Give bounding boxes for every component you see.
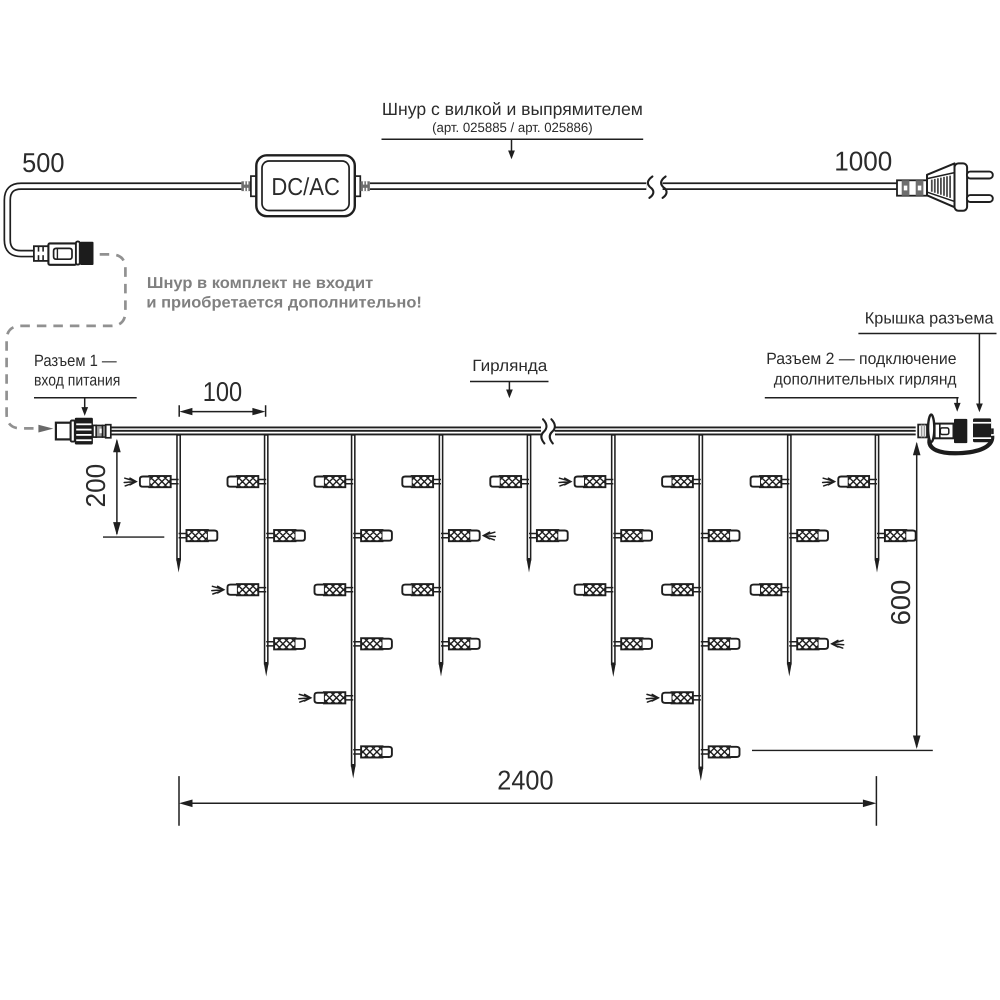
svg-text:DC/AC: DC/AC	[271, 174, 340, 201]
svg-text:Шнур с вилкой и выпрямителем: Шнур с вилкой и выпрямителем	[382, 99, 643, 119]
svg-text:Гирлянда: Гирлянда	[472, 357, 548, 375]
svg-text:1000: 1000	[834, 145, 892, 176]
svg-text:и приобретается дополнительно!: и приобретается дополнительно!	[146, 295, 422, 312]
svg-text:Разъем 2 — подключение: Разъем 2 — подключение	[766, 350, 956, 368]
svg-text:вход питания: вход питания	[34, 372, 120, 390]
svg-text:500: 500	[22, 147, 64, 178]
svg-text:дополнительных гирлянд: дополнительных гирлянд	[774, 371, 957, 389]
svg-text:600: 600	[885, 580, 916, 626]
svg-text:100: 100	[203, 376, 242, 407]
svg-text:200: 200	[80, 464, 111, 508]
svg-text:(арт. 025885 / арт. 025886): (арт. 025885 / арт. 025886)	[432, 120, 593, 135]
svg-text:2400: 2400	[497, 764, 553, 795]
svg-text:Крышка разъема: Крышка разъема	[865, 309, 995, 327]
svg-text:Шнур в комплект не входит: Шнур в комплект не входит	[147, 275, 374, 292]
svg-text:Разъем 1 —: Разъем 1 —	[34, 352, 117, 370]
